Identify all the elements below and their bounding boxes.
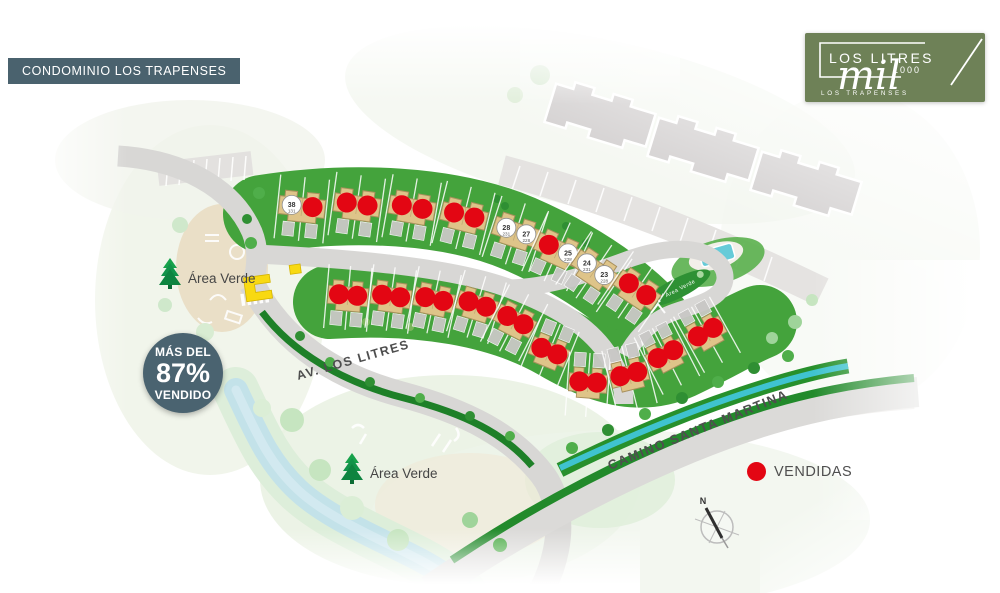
logo-subtitle: LOS TRAPENSES (821, 90, 909, 97)
brand-logo-art: LOS LITRES 1000 mil LOS TRAPENSES (805, 33, 985, 102)
brand-logo: LOS LITRES 1000 mil LOS TRAPENSES (805, 33, 985, 102)
lot-badge: 24231 (577, 254, 596, 273)
driveway (432, 317, 446, 333)
lot-badge: 27228 (517, 225, 536, 244)
driveway (350, 312, 363, 327)
badge-line1: MÁS DEL (155, 345, 211, 359)
driveway (336, 218, 349, 233)
driveway (359, 222, 372, 237)
area-verde-text: Área Verde (370, 466, 438, 484)
driveway (371, 311, 384, 326)
legend-sold-label: VENDIDAS (774, 464, 852, 480)
lot-area: 231 (583, 267, 591, 272)
pine-tree-icon (340, 452, 364, 484)
pine-tree-icon (158, 257, 182, 289)
lot-badge: 38131 (282, 195, 301, 214)
driveway (305, 224, 318, 239)
driveway (412, 312, 426, 328)
lot-badge: 28231 (497, 218, 516, 237)
lot-area: 231 (502, 231, 510, 236)
area-verde-label-2: Área Verde (340, 452, 438, 484)
area-verde-text: Área Verde (188, 271, 256, 289)
compass-n-label: N (700, 496, 707, 506)
lot-area: 228 (600, 279, 608, 284)
badge-line2: VENDIDO (155, 388, 212, 402)
driveway (391, 313, 404, 328)
lot-badge: 23228 (595, 266, 614, 285)
driveway (282, 221, 295, 236)
project-title-banner: CONDOMINIO LOS TRAPENSES (8, 58, 240, 84)
legend-sold-dot (747, 462, 766, 481)
site-plan-page: Área Verde (0, 0, 1000, 593)
driveway (330, 311, 343, 326)
driveway (390, 221, 404, 237)
lot-area: 228 (522, 238, 530, 243)
driveway (412, 225, 426, 241)
legend: VENDIDAS (747, 462, 852, 481)
sold-percentage-badge: MÁS DEL 87% VENDIDO (143, 333, 223, 413)
lot-area: 131 (288, 208, 296, 213)
driveway (574, 352, 586, 367)
area-verde-label-1: Área Verde (158, 257, 256, 289)
badge-percent: 87% (156, 360, 210, 387)
